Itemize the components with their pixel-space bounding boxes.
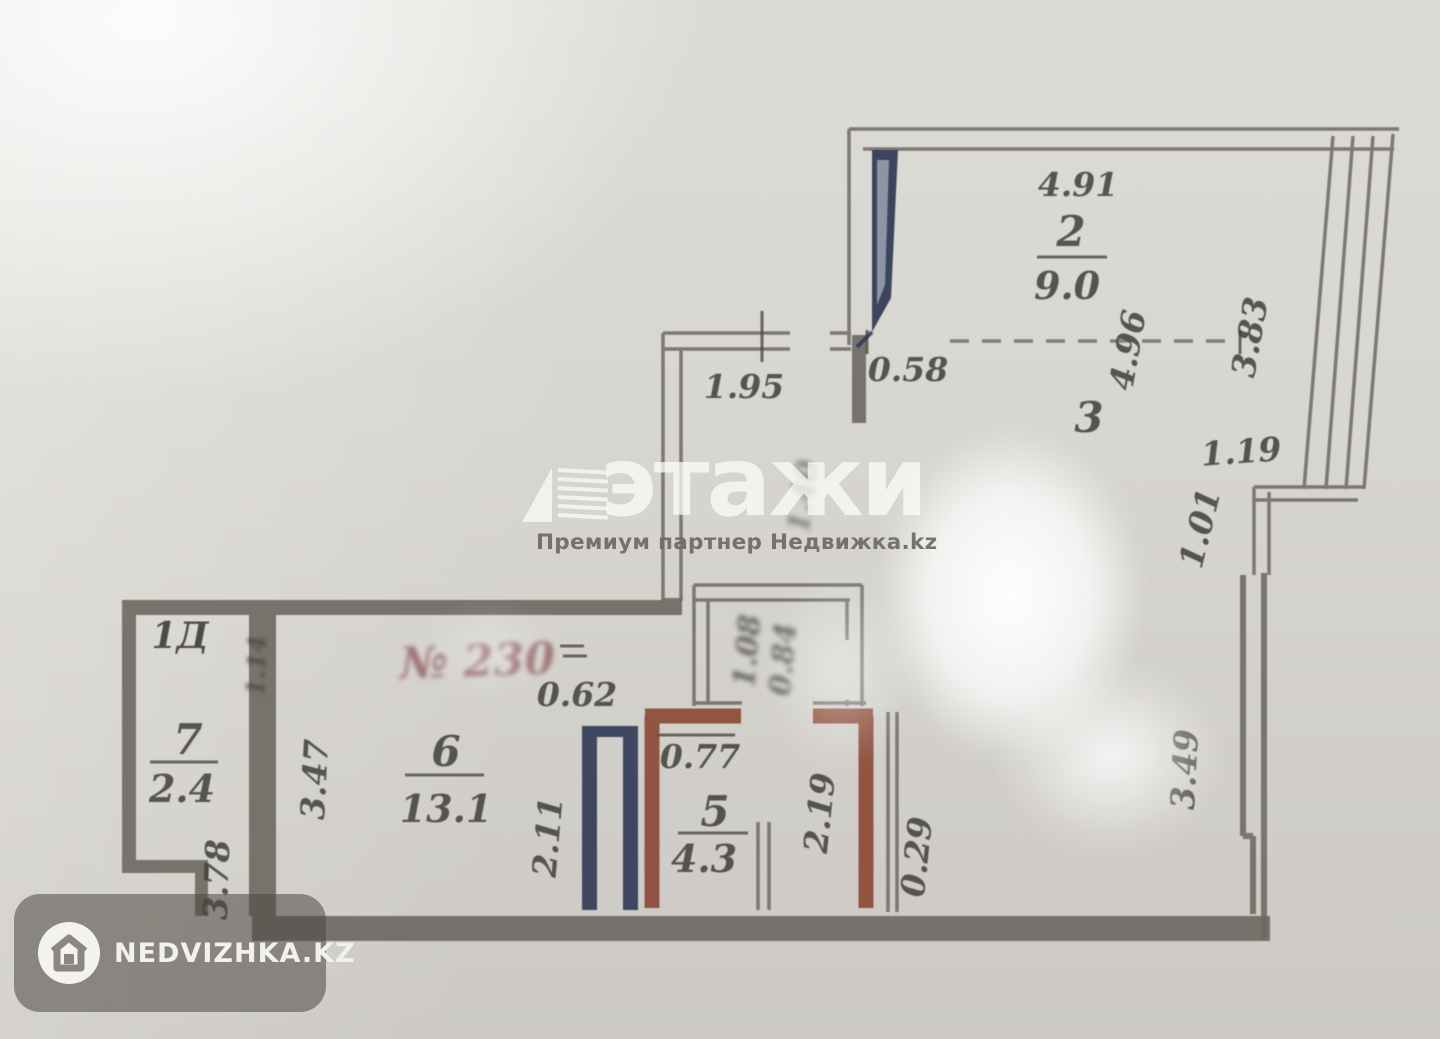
dim-2-11: 2.11 bbox=[525, 795, 571, 879]
dim-3-49: 3.49 bbox=[1163, 728, 1206, 810]
room3-number: 3 bbox=[1074, 393, 1103, 442]
blue-shaft bbox=[582, 726, 638, 910]
room7-number: 7 bbox=[173, 715, 202, 764]
right-wall bbox=[1243, 573, 1264, 938]
badge-label: NEDVIZHKA.KZ bbox=[114, 938, 356, 969]
illegible-scribble: 0.84 bbox=[763, 621, 804, 697]
dim-4-91: 4.91 bbox=[1038, 165, 1118, 204]
thin-walls bbox=[663, 129, 1399, 912]
room6-number: 6 bbox=[431, 727, 460, 776]
room5-area: 4.3 bbox=[671, 836, 737, 881]
nedvizhka-badge: NEDVIZHKA.KZ bbox=[14, 894, 326, 1012]
dim-1-95: 1.95 bbox=[704, 367, 784, 406]
balcony-door-icon bbox=[857, 150, 898, 347]
dim-4-96: 4.96 bbox=[1101, 307, 1153, 393]
dim-0-29: 0.29 bbox=[893, 815, 940, 899]
room2-area: 9.0 bbox=[1034, 263, 1101, 308]
house-icon bbox=[38, 922, 100, 984]
house-icon-glyph bbox=[49, 934, 89, 972]
unit-label-handwritten: 1Д bbox=[151, 615, 209, 657]
illegible-scribble: 1.14 bbox=[241, 635, 272, 697]
floorplan-photo: 4.91 0.58 1.95 4.96 3.83 1.19 1.01 3.49 … bbox=[0, 0, 1440, 1039]
room5-number: 5 bbox=[700, 787, 729, 836]
illegible-scribble: 1.40 bbox=[781, 458, 826, 535]
dim-1-19: 1.19 bbox=[1200, 429, 1283, 474]
dim-3-83: 3.83 bbox=[1223, 294, 1275, 380]
dim-1-01: 1.01 bbox=[1171, 485, 1228, 572]
room2-number: 2 bbox=[1055, 207, 1085, 256]
room7-area: 2.4 bbox=[148, 766, 215, 811]
dim-0-58: 0.58 bbox=[868, 350, 948, 389]
red-note-handwritten: № 230 bbox=[397, 633, 556, 689]
room6-area: 13.1 bbox=[400, 786, 493, 831]
dim-0-77: 0.77 bbox=[660, 737, 740, 776]
dim-3-47: 3.47 bbox=[293, 738, 336, 820]
floorplan-drawing: 4.91 0.58 1.95 4.96 3.83 1.19 1.01 3.49 … bbox=[0, 0, 1440, 1039]
illegible-scribble: 1.08 bbox=[727, 613, 768, 689]
dim-2-19: 2.19 bbox=[796, 771, 843, 856]
